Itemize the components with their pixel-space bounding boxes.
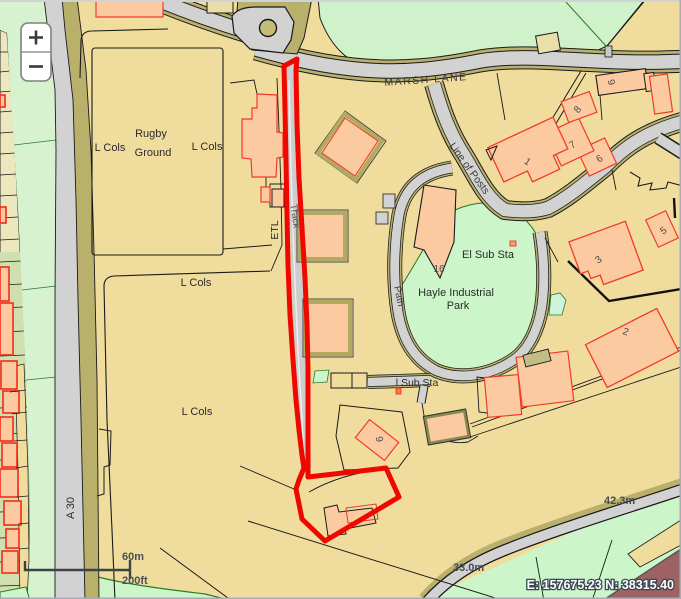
svg-text:33.0m: 33.0m (453, 562, 484, 574)
svg-text:Hayle Industrial: Hayle Industrial (418, 287, 494, 299)
svg-text:L Cols: L Cols (181, 277, 212, 289)
svg-text:Ground: Ground (135, 147, 172, 159)
svg-text:L Cols: L Cols (182, 406, 213, 418)
svg-text:A 30: A 30 (65, 497, 77, 519)
svg-text:60m: 60m (122, 551, 144, 563)
svg-text:16: 16 (433, 264, 445, 275)
svg-text:L Cols: L Cols (95, 142, 126, 154)
svg-text:42.3m: 42.3m (604, 495, 635, 507)
svg-text:L Cols: L Cols (192, 141, 223, 153)
svg-text:E: 157675.23 N: 38315.40: E: 157675.23 N: 38315.40 (527, 578, 674, 592)
svg-text:Park: Park (447, 300, 470, 312)
svg-text:Rugby: Rugby (135, 128, 167, 140)
svg-text:ETL: ETL (269, 220, 281, 239)
svg-text:l Sub Sta: l Sub Sta (396, 377, 439, 389)
svg-text:200ft: 200ft (122, 575, 148, 587)
svg-text:El Sub Sta: El Sub Sta (462, 249, 515, 261)
